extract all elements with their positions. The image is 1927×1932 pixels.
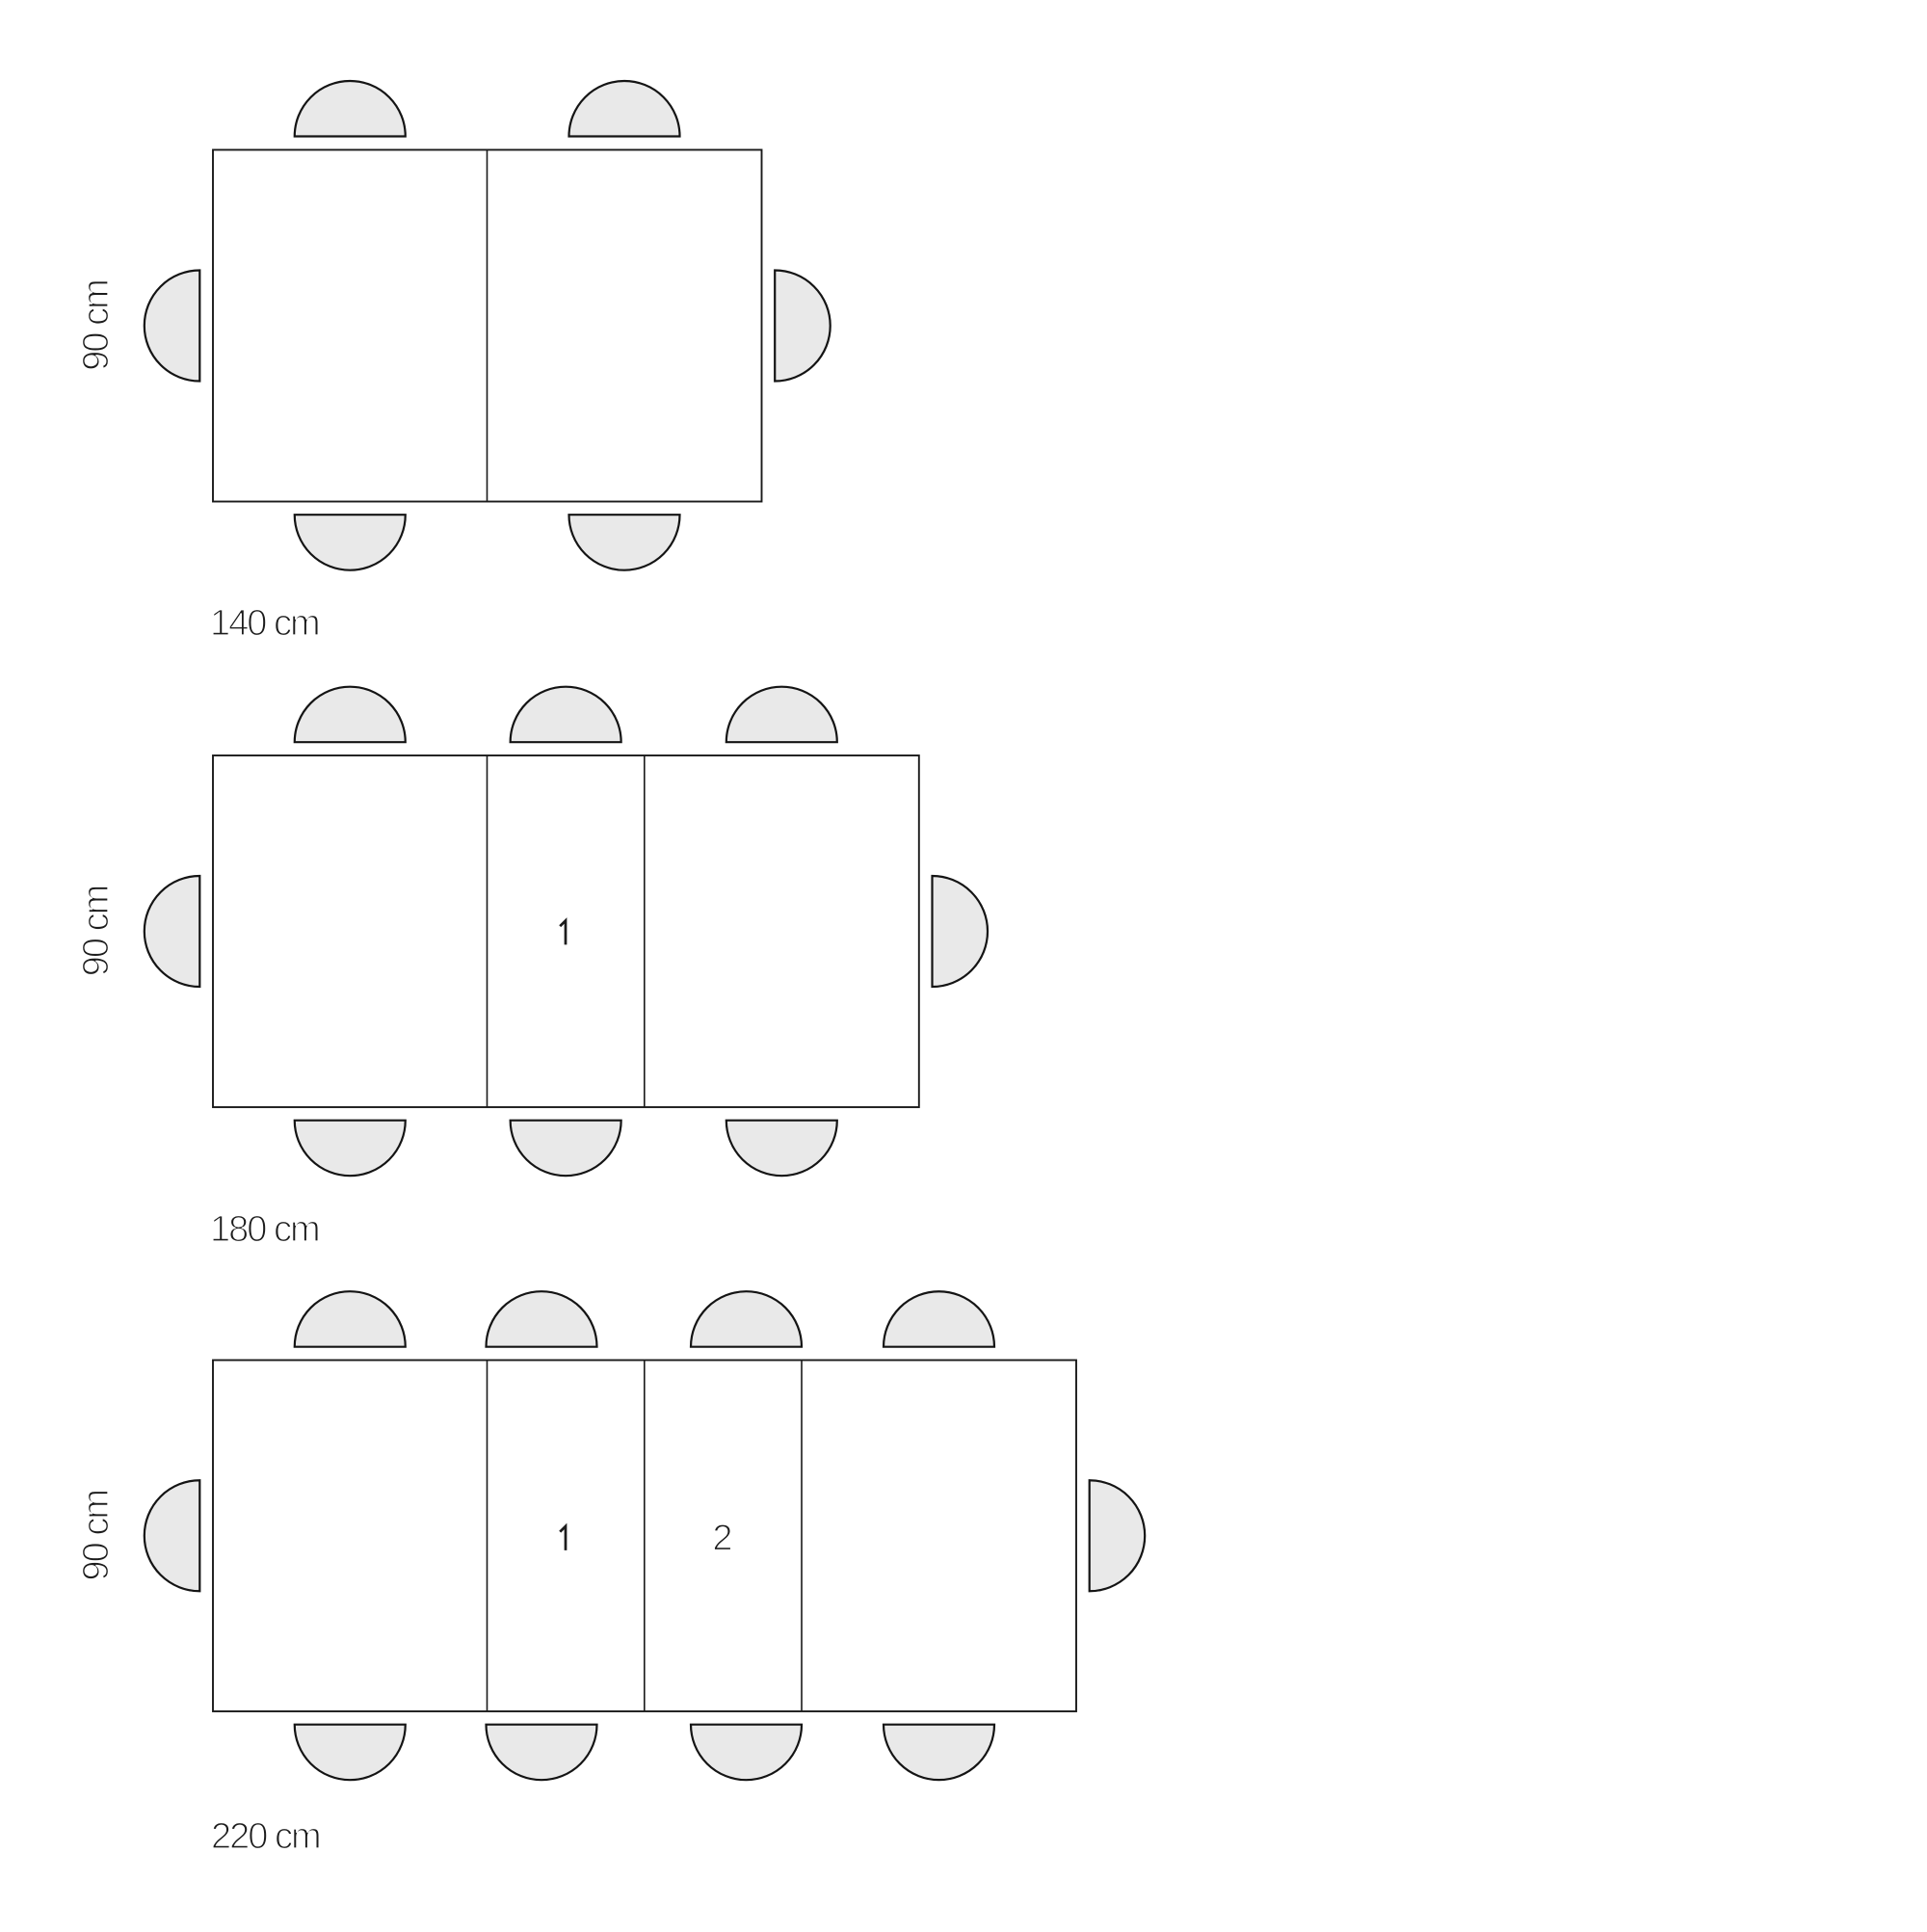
svg-text:90 cm: 90 cm bbox=[76, 1491, 117, 1581]
svg-text:2: 2 bbox=[712, 1519, 732, 1559]
svg-text:180 cm: 180 cm bbox=[210, 1209, 319, 1250]
svg-text:90 cm: 90 cm bbox=[76, 280, 117, 371]
svg-text:140 cm: 140 cm bbox=[210, 603, 319, 644]
svg-text:90 cm: 90 cm bbox=[76, 886, 117, 976]
svg-text:220 cm: 220 cm bbox=[211, 1816, 320, 1857]
